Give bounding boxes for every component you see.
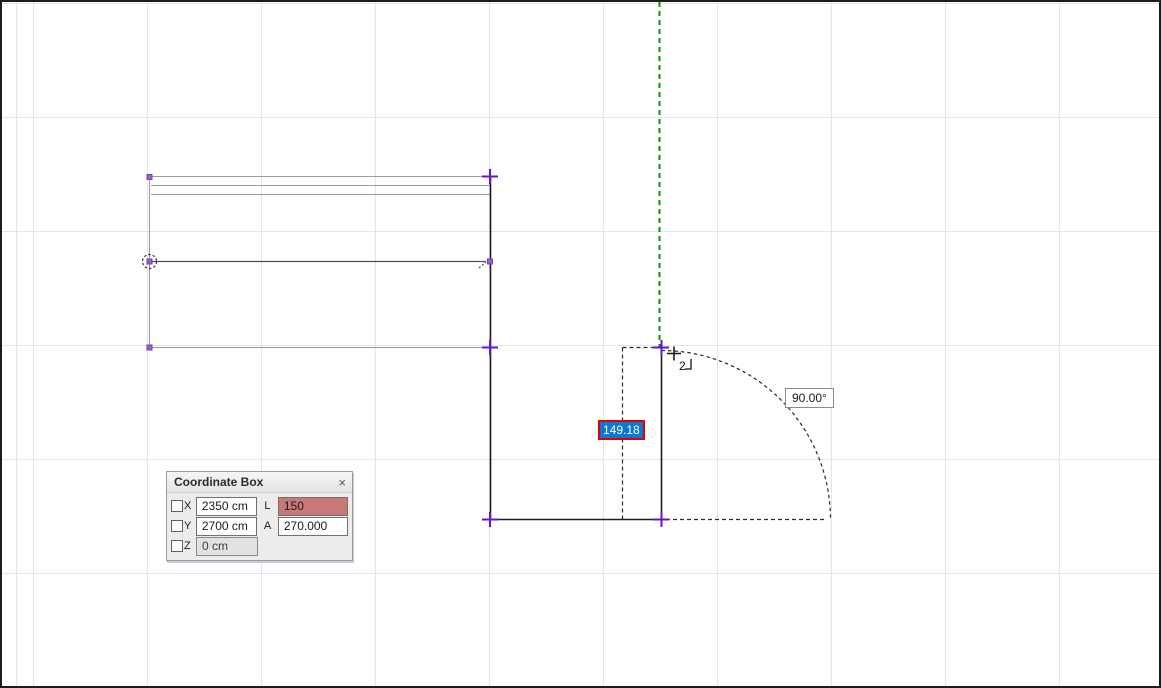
angle-arc-dashed — [662, 351, 831, 520]
coordinate-box-palette: Coordinate Box × X 2350 cm L 150 Y 2700 … — [166, 471, 353, 561]
drawn-lines[interactable] — [490, 176, 662, 520]
hotspot-squares — [147, 175, 493, 351]
palette-title: Coordinate Box — [174, 475, 263, 489]
z-lock-checkbox[interactable] — [171, 540, 183, 552]
length-value-field[interactable]: 150 — [278, 497, 348, 516]
y-axis-label: Y — [183, 520, 196, 532]
angle-label: A — [257, 520, 278, 532]
z-value-field[interactable]: 0 cm — [196, 537, 258, 556]
construction-dashed-lines — [623, 348, 826, 520]
z-axis-label: Z — [183, 540, 196, 552]
angle-value-field[interactable]: 270.000 — [278, 517, 348, 536]
cursor-badge-text: 2 — [679, 359, 686, 373]
line-end-tick — [479, 262, 486, 268]
close-icon[interactable]: × — [338, 476, 346, 489]
coordinate-box-body: X 2350 cm L 150 Y 2700 cm A 270.000 Z 0 … — [167, 493, 352, 560]
coordinate-row-z: Z 0 cm — [171, 536, 348, 556]
length-edit-field[interactable]: 149.18 — [598, 420, 645, 440]
x-value-field[interactable]: 2350 cm — [196, 497, 257, 516]
drawing-layer: 2 — [2, 2, 1161, 688]
angle-readout-label: 90.00° — [785, 388, 834, 408]
coordinate-box-titlebar[interactable]: Coordinate Box × — [167, 472, 352, 493]
snap-cross-markers — [482, 169, 669, 527]
length-label: L — [257, 500, 278, 512]
x-axis-label: X — [183, 500, 196, 512]
coordinate-row-y: Y 2700 cm A 270.000 — [171, 516, 348, 536]
y-lock-checkbox[interactable] — [171, 520, 183, 532]
coordinate-row-x: X 2350 cm L 150 — [171, 496, 348, 516]
y-value-field[interactable]: 2700 cm — [196, 517, 257, 536]
cad-window: 2 90.00° 149.18 Coordinate Box × X 2350 … — [0, 0, 1161, 688]
x-lock-checkbox[interactable] — [171, 500, 183, 512]
